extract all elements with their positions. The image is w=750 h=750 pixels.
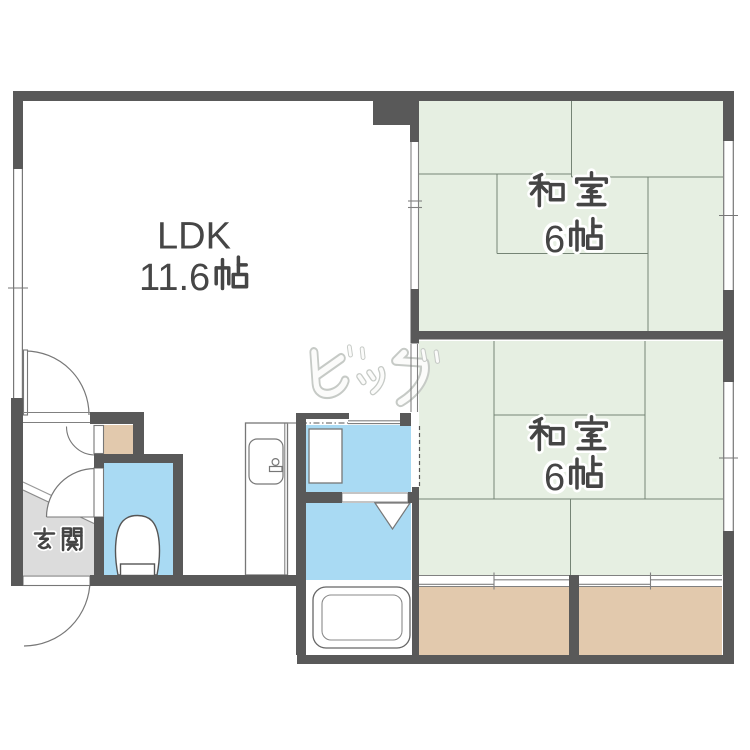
svg-text:6: 6 bbox=[544, 219, 565, 261]
svg-text:LDK: LDK bbox=[157, 216, 231, 258]
svg-text:6: 6 bbox=[544, 457, 565, 499]
svg-text:11.6: 11.6 bbox=[139, 257, 210, 299]
